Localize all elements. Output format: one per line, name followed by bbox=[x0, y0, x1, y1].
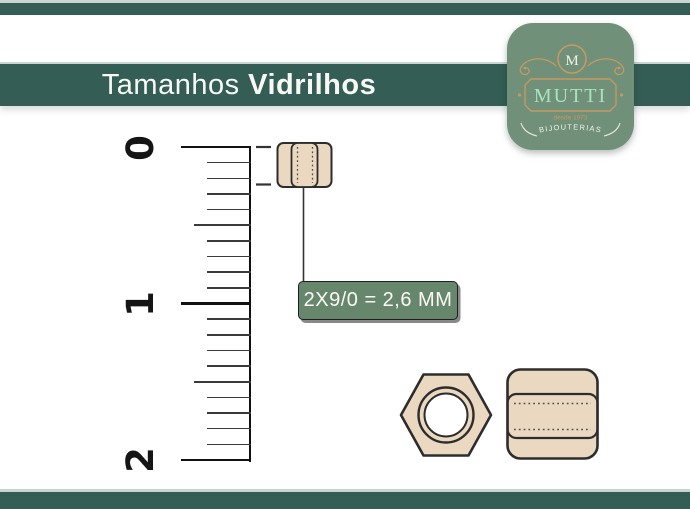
flourish-left bbox=[520, 59, 556, 75]
ruler-tick-mm bbox=[207, 162, 251, 164]
monogram-letter: M bbox=[565, 53, 578, 69]
top-bar bbox=[0, 3, 690, 15]
ruler-tick-mm bbox=[207, 271, 251, 273]
bottom-bar bbox=[0, 492, 690, 509]
ruler-number-1: 1 bbox=[110, 274, 170, 334]
ruler-tick-mm bbox=[207, 412, 251, 414]
ruler-tick-mm bbox=[207, 444, 251, 446]
brand-tagline: BIJOUTERIAS bbox=[538, 122, 602, 134]
ruler-tick-mm bbox=[207, 334, 251, 336]
page-title: Tamanhos Vidrilhos bbox=[0, 64, 478, 106]
ruler-tick-mm bbox=[194, 224, 251, 226]
bead-ring-outer bbox=[419, 388, 474, 443]
frame-dot-right bbox=[620, 93, 623, 96]
tagline-swoosh-left bbox=[521, 123, 537, 136]
ruler-tick-mm bbox=[207, 178, 251, 180]
ruler-tick-cm bbox=[181, 459, 251, 461]
tagline-swoosh-right bbox=[604, 123, 620, 136]
ruler-tick-mm bbox=[207, 193, 251, 195]
brand-logo: M MUTTI desde 1973 BIJOUTERIAS bbox=[507, 23, 634, 150]
ruler-tick-mm bbox=[207, 318, 251, 320]
size-label-text: 2X9/0 = 2,6 MM bbox=[304, 289, 453, 312]
frame-dot-left bbox=[518, 93, 521, 96]
bead-end-view bbox=[401, 375, 491, 456]
bead-side-view bbox=[508, 370, 598, 459]
page-title-bold: Vidrilhos bbox=[248, 69, 376, 102]
ruler-tick-mm bbox=[207, 287, 251, 289]
ruler-number-2: 2 bbox=[110, 430, 170, 490]
ruler-tick-mm bbox=[207, 209, 251, 211]
page-title-light: Tamanhos bbox=[102, 69, 240, 102]
ruler-tick-mm bbox=[207, 397, 251, 399]
ruler-tick-mm bbox=[207, 365, 251, 367]
brand-logo-art: M MUTTI desde 1973 BIJOUTERIAS bbox=[507, 23, 634, 150]
ruler-tick-mm bbox=[207, 256, 251, 258]
ruler-tick-mm bbox=[207, 350, 251, 352]
size-label: 2X9/0 = 2,6 MM bbox=[298, 281, 458, 320]
brand-since: desde 1973 bbox=[554, 115, 588, 122]
infographic-canvas: Tamanhos Vidrilhos M MUTTI desde 1973 bbox=[0, 0, 690, 509]
ruler-tick-cm bbox=[181, 302, 251, 304]
bead-hole bbox=[425, 394, 468, 437]
ruler-tick-mm bbox=[207, 240, 251, 242]
ruler-tick-mm bbox=[207, 428, 251, 430]
ruler-tick-cm bbox=[181, 146, 251, 148]
measured-bead bbox=[278, 143, 332, 187]
ruler-number-0: 0 bbox=[110, 118, 170, 178]
flourish-right bbox=[588, 59, 624, 75]
title-space bbox=[240, 69, 249, 102]
brand-name: MUTTI bbox=[534, 85, 607, 107]
ruler-tick-mm bbox=[194, 381, 251, 383]
